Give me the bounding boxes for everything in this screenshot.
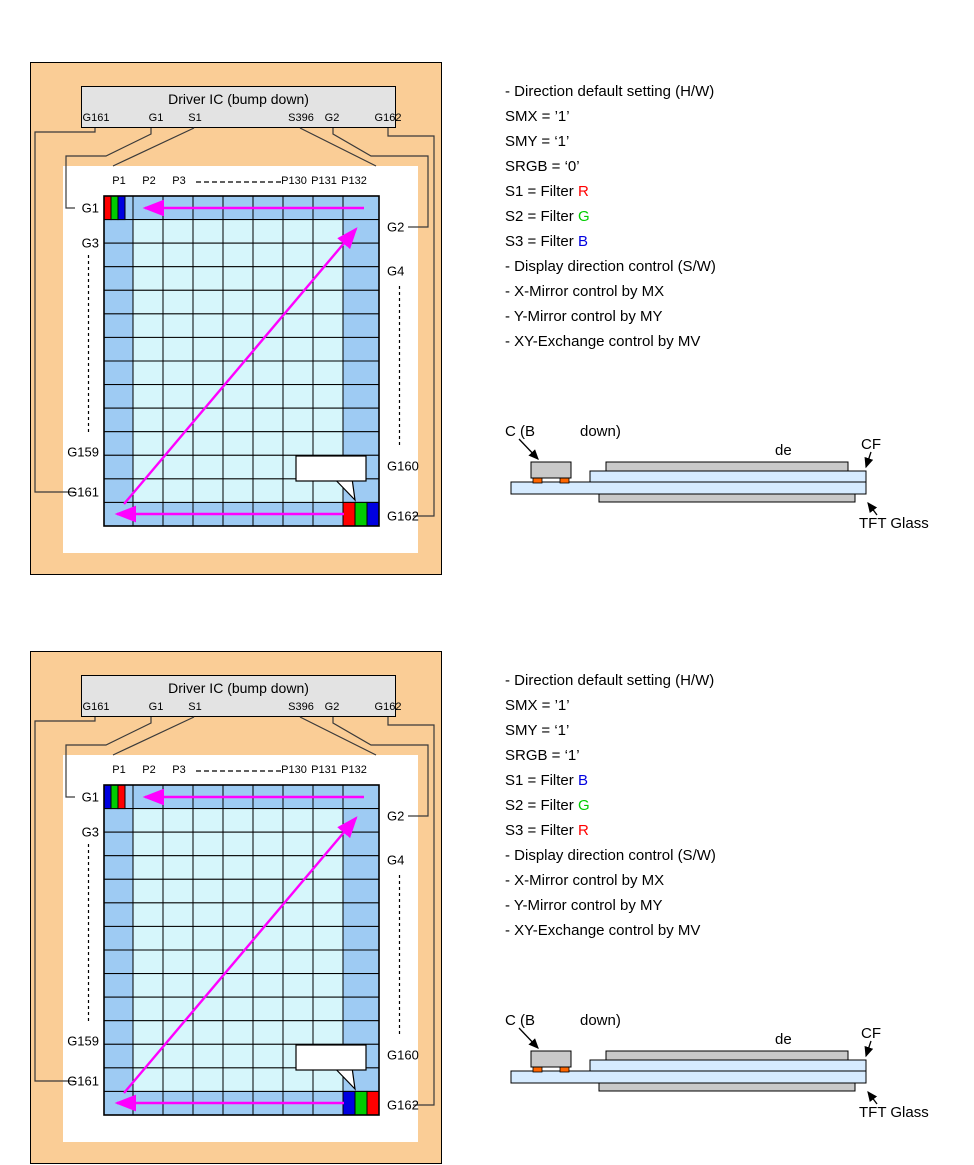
de-label: de (775, 442, 792, 459)
setting-heading: - Direction default setting (H/W) (505, 668, 945, 693)
setting-s3: S3 = Filter R (505, 818, 945, 843)
row-label-g3: G3 (57, 825, 99, 840)
chip-label-b: down) (580, 423, 621, 440)
setting-my: - Y-Mirror control by MY (505, 893, 945, 918)
top-polarizer-bar (606, 1051, 848, 1060)
setting-mx: - X-Mirror control by MX (505, 868, 945, 893)
row-label-g1: G1 (57, 201, 99, 216)
row-label-g160: G160 (387, 459, 419, 474)
chip-label-a: C (B (505, 1012, 535, 1029)
setting-s1: S1 = Filter R (505, 179, 945, 204)
row-label-g159: G159 (57, 1034, 99, 1049)
cf-label: CF (861, 436, 881, 453)
tft-pointer-arrow (868, 1092, 877, 1104)
row-label-g162: G162 (387, 509, 419, 524)
lcd-module-panel: Driver IC (bump down) G161 G1 S1 S396 G2… (30, 651, 442, 1164)
direction-setting-figure-1: Driver IC (bump down) G161 G1 S1 S396 G2… (0, 62, 974, 575)
settings-text-block: - Direction default setting (H/W) SMX = … (505, 668, 945, 943)
col-label-p132: P132 (341, 175, 367, 187)
cf-pointer-arrow (866, 452, 871, 467)
setting-my: - Y-Mirror control by MY (505, 304, 945, 329)
row-label-g3: G3 (57, 236, 99, 251)
cf-label: CF (861, 1025, 881, 1042)
bottom-polarizer-bar (599, 494, 855, 502)
col-label-p2: P2 (142, 764, 155, 776)
chip-label-b: down) (580, 1012, 621, 1029)
filter-letter: G (578, 208, 590, 225)
col-label-p1: P1 (112, 764, 125, 776)
filter-letter: B (578, 772, 588, 789)
col-label-p131: P131 (311, 175, 337, 187)
driver-chip (531, 462, 571, 478)
setting-heading: - Direction default setting (H/W) (505, 79, 945, 104)
row-label-g2: G2 (387, 809, 404, 824)
row-label-g162: G162 (387, 1098, 419, 1113)
filter-letter: R (578, 822, 589, 839)
filter-letter: R (578, 183, 589, 200)
row-label-g161: G161 (57, 485, 99, 500)
setting-mv: - XY-Exchange control by MV (505, 918, 945, 943)
setting-sw-heading: - Display direction control (S/W) (505, 843, 945, 868)
row-label-g4: G4 (387, 853, 404, 868)
row-label-g160: G160 (387, 1048, 419, 1063)
cf-glass-layer (590, 1060, 866, 1071)
col-label-p130: P130 (281, 764, 307, 776)
tft-glass-label: TFT Glass (859, 515, 929, 532)
lcd-module-panel: Driver IC (bump down) G161 G1 S1 S396 G2… (30, 62, 442, 575)
chip-pointer-arrow (519, 439, 538, 459)
filter-letter: G (578, 797, 590, 814)
col-label-p3: P3 (172, 175, 185, 187)
setting-mx: - X-Mirror control by MX (505, 279, 945, 304)
tft-glass-label: TFT Glass (859, 1104, 929, 1121)
cf-glass-layer (590, 471, 866, 482)
setting-srgb: SRGB = ‘0’ (505, 154, 945, 179)
driver-chip (531, 1051, 571, 1067)
tft-pointer-arrow (868, 503, 877, 515)
bottom-polarizer-bar (599, 1083, 855, 1091)
row-label-g1: G1 (57, 790, 99, 805)
setting-srgb: SRGB = ‘1’ (505, 743, 945, 768)
setting-s2: S2 = Filter G (505, 204, 945, 229)
setting-s1: S1 = Filter B (505, 768, 945, 793)
row-label-g159: G159 (57, 445, 99, 460)
setting-smx: SMX = ’1’ (505, 104, 945, 129)
filter-letter: B (578, 233, 588, 250)
row-label-g2: G2 (387, 220, 404, 235)
direction-setting-figure-2: Driver IC (bump down) G161 G1 S1 S396 G2… (0, 651, 974, 1164)
row-label-g161: G161 (57, 1074, 99, 1089)
chip-pointer-arrow (519, 1028, 538, 1048)
de-label: de (775, 1031, 792, 1048)
settings-text-block: - Direction default setting (H/W) SMX = … (505, 79, 945, 354)
glass-cross-section: C (B down) de CF TFT Glass (503, 997, 968, 1132)
setting-s2: S2 = Filter G (505, 793, 945, 818)
col-label-p131: P131 (311, 764, 337, 776)
col-label-p132: P132 (341, 764, 367, 776)
col-label-p130: P130 (281, 175, 307, 187)
row-label-g4: G4 (387, 264, 404, 279)
setting-smx: SMX = ’1’ (505, 693, 945, 718)
col-label-p2: P2 (142, 175, 155, 187)
cf-pointer-arrow (866, 1041, 871, 1056)
setting-s3: S3 = Filter B (505, 229, 945, 254)
col-label-p3: P3 (172, 764, 185, 776)
setting-mv: - XY-Exchange control by MV (505, 329, 945, 354)
chip-label-a: C (B (505, 423, 535, 440)
col-label-p1: P1 (112, 175, 125, 187)
glass-cross-section: C (B down) de CF TFT Glass (503, 408, 968, 543)
top-polarizer-bar (606, 462, 848, 471)
tft-glass-layer (511, 1071, 866, 1083)
setting-smy: SMY = ‘1’ (505, 718, 945, 743)
setting-sw-heading: - Display direction control (S/W) (505, 254, 945, 279)
tft-glass-layer (511, 482, 866, 494)
setting-smy: SMY = ‘1’ (505, 129, 945, 154)
